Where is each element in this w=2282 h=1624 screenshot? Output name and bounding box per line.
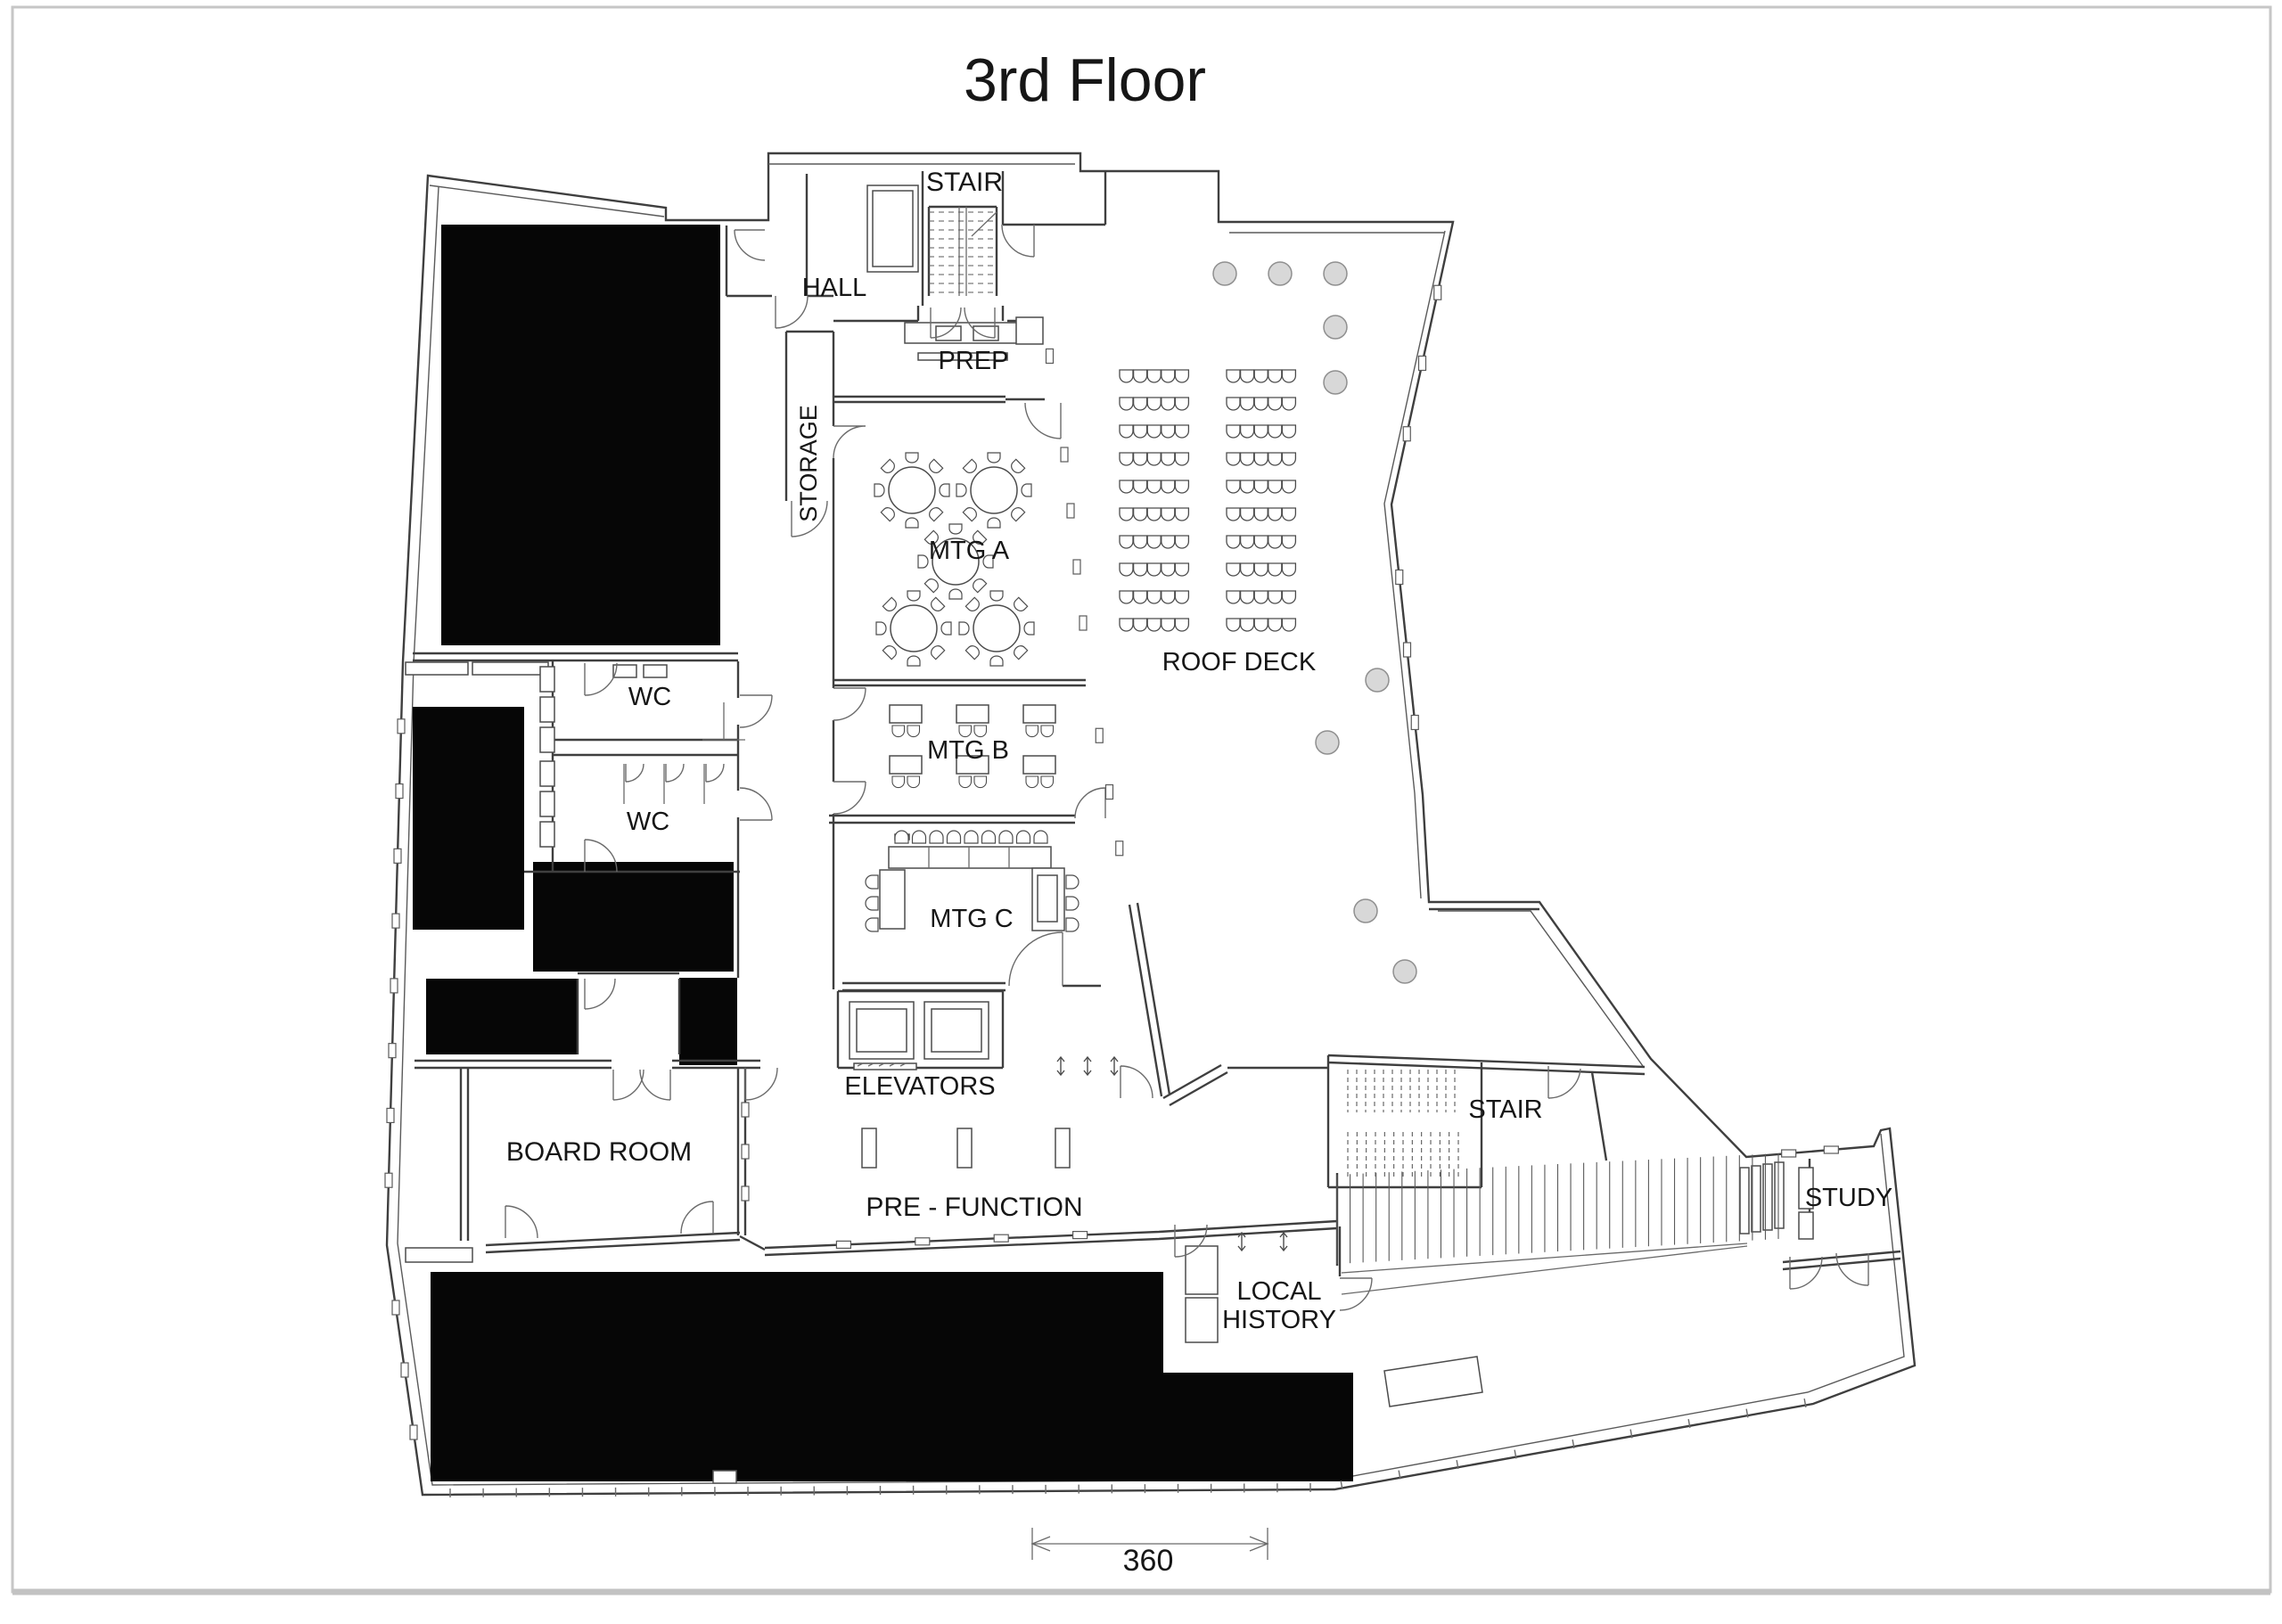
theater-chair bbox=[1254, 591, 1268, 603]
theater-chair bbox=[1254, 370, 1268, 382]
chair-icon bbox=[959, 726, 972, 737]
window-tick bbox=[1116, 841, 1123, 856]
chair-icon bbox=[999, 831, 1013, 843]
theater-chair bbox=[1147, 619, 1161, 631]
column-dot bbox=[1324, 371, 1347, 394]
conference-table-top bbox=[889, 847, 1051, 868]
locker bbox=[540, 791, 554, 816]
window-tick bbox=[1434, 285, 1441, 299]
label-stair-top: STAIR bbox=[926, 168, 1003, 197]
chair-icon bbox=[907, 656, 920, 666]
column-dot bbox=[1324, 262, 1347, 285]
chair-icon bbox=[949, 589, 962, 599]
window-tick bbox=[396, 784, 403, 799]
bookstack bbox=[1763, 1164, 1772, 1230]
theater-chair bbox=[1254, 536, 1268, 548]
prep-equipment bbox=[1016, 317, 1043, 344]
page-title: 3rd Floor bbox=[964, 46, 1206, 114]
theater-chair bbox=[1175, 480, 1188, 493]
conference-table-left bbox=[880, 870, 905, 929]
theater-chair bbox=[1120, 591, 1133, 603]
chair-icon bbox=[1026, 726, 1038, 737]
theater-chair bbox=[1282, 536, 1295, 548]
theater-chair bbox=[1175, 453, 1188, 465]
theater-chair bbox=[1282, 480, 1295, 493]
window-tick bbox=[742, 1186, 749, 1201]
chair-icon bbox=[948, 831, 961, 843]
theater-chair bbox=[1120, 480, 1133, 493]
window-tick bbox=[1824, 1146, 1838, 1153]
chair-icon bbox=[1066, 897, 1079, 910]
column-dot bbox=[1316, 731, 1339, 754]
label-wc-upper: WC bbox=[628, 683, 671, 711]
window-tick bbox=[398, 719, 405, 734]
theater-chair bbox=[1268, 619, 1282, 631]
window-tick bbox=[385, 1173, 392, 1187]
theater-chair bbox=[1241, 591, 1254, 603]
theater-chair bbox=[1268, 398, 1282, 410]
theater-chair bbox=[1162, 398, 1175, 410]
column-dot bbox=[1268, 262, 1292, 285]
theater-chair bbox=[1241, 508, 1254, 521]
theater-chair bbox=[1147, 398, 1161, 410]
window-tick bbox=[994, 1234, 1008, 1242]
label-local-history-1: LOCAL bbox=[1236, 1277, 1321, 1306]
window-tick bbox=[1079, 616, 1087, 630]
chair-icon bbox=[941, 622, 951, 635]
theater-chair bbox=[1134, 619, 1147, 631]
theater-chair bbox=[1241, 619, 1254, 631]
theater-chair bbox=[1134, 536, 1147, 548]
theater-chair bbox=[1241, 563, 1254, 576]
bookstack bbox=[1775, 1162, 1784, 1228]
round-table bbox=[971, 467, 1017, 513]
column-dot bbox=[1354, 899, 1377, 923]
theater-chair bbox=[1147, 563, 1161, 576]
elevator-sill bbox=[854, 1063, 916, 1070]
theater-chair bbox=[1241, 480, 1254, 493]
chair-icon bbox=[907, 776, 920, 788]
chair-icon bbox=[874, 484, 884, 496]
theater-chair bbox=[1268, 508, 1282, 521]
theater-chair bbox=[1254, 398, 1268, 410]
conference-table-right-inner bbox=[1038, 875, 1057, 922]
small-table bbox=[890, 756, 922, 774]
chair-icon bbox=[913, 831, 926, 843]
theater-chair bbox=[1227, 425, 1240, 438]
theater-chair bbox=[1134, 370, 1147, 382]
window-tick bbox=[742, 1103, 749, 1117]
chair-icon bbox=[974, 776, 987, 788]
column-dot bbox=[1393, 960, 1416, 983]
window-tick bbox=[1067, 504, 1074, 518]
theater-chair bbox=[1282, 508, 1295, 521]
theater-chair bbox=[1282, 563, 1295, 576]
counter bbox=[406, 662, 468, 675]
theater-chair bbox=[1120, 453, 1133, 465]
theater-chair bbox=[1268, 563, 1282, 576]
chair-icon bbox=[959, 622, 969, 635]
round-table bbox=[891, 605, 937, 652]
shaft-room bbox=[867, 185, 918, 272]
chair-icon bbox=[1034, 831, 1047, 843]
theater-chair bbox=[1175, 508, 1188, 521]
theater-chair bbox=[1147, 508, 1161, 521]
theater-chair bbox=[1268, 453, 1282, 465]
column bbox=[862, 1128, 876, 1168]
chair-icon bbox=[907, 726, 920, 737]
theater-chair bbox=[1147, 591, 1161, 603]
label-hall: HALL bbox=[802, 274, 867, 302]
label-mtg-a: MTG A bbox=[929, 537, 1010, 565]
window-tick bbox=[392, 914, 399, 928]
theater-chair bbox=[1254, 480, 1268, 493]
sink bbox=[644, 665, 667, 677]
theater-chair bbox=[1147, 453, 1161, 465]
chair-icon bbox=[892, 726, 905, 737]
chair-icon bbox=[892, 776, 905, 788]
window-tick bbox=[1061, 447, 1068, 462]
chair-icon bbox=[866, 875, 878, 889]
chair-icon bbox=[906, 518, 918, 528]
chair-icon bbox=[965, 831, 978, 843]
shaft-inner bbox=[873, 191, 913, 267]
chair-icon bbox=[990, 656, 1003, 666]
redacted-room-small-left bbox=[426, 979, 578, 1054]
chair-icon bbox=[956, 484, 966, 496]
prep-counter bbox=[905, 323, 1021, 343]
theater-chair bbox=[1120, 425, 1133, 438]
theater-chair bbox=[1227, 370, 1240, 382]
theater-chair bbox=[1268, 591, 1282, 603]
theater-chair bbox=[1254, 425, 1268, 438]
chair-icon bbox=[1024, 622, 1034, 635]
theater-chair bbox=[1227, 619, 1240, 631]
theater-chair bbox=[1175, 370, 1188, 382]
credenza bbox=[406, 1248, 472, 1262]
small-table bbox=[890, 705, 922, 723]
chair-icon bbox=[1026, 776, 1038, 788]
theater-chair bbox=[1134, 398, 1147, 410]
redacted-room-mid bbox=[533, 862, 734, 972]
door-notch bbox=[713, 1471, 736, 1483]
label-prep: PREP bbox=[939, 347, 1009, 375]
theater-chair bbox=[1162, 453, 1175, 465]
chair-icon bbox=[974, 726, 987, 737]
chair-icon bbox=[1041, 776, 1054, 788]
theater-chair bbox=[1254, 563, 1268, 576]
theater-chair bbox=[1282, 425, 1295, 438]
small-table bbox=[1023, 705, 1055, 723]
window-tick bbox=[1096, 728, 1103, 742]
window-tick bbox=[394, 849, 401, 863]
theater-chair bbox=[1254, 453, 1268, 465]
theater-chair bbox=[1227, 398, 1240, 410]
theater-chair bbox=[1227, 563, 1240, 576]
chair-icon bbox=[988, 453, 1000, 463]
theater-chair bbox=[1268, 536, 1282, 548]
chair-icon bbox=[1022, 484, 1031, 496]
theater-chair bbox=[1175, 591, 1188, 603]
chair-icon bbox=[949, 524, 962, 534]
window-tick bbox=[1047, 349, 1054, 364]
bookstack bbox=[1740, 1168, 1749, 1234]
theater-chair bbox=[1162, 508, 1175, 521]
theater-chair bbox=[1134, 425, 1147, 438]
theater-chair bbox=[1120, 563, 1133, 576]
chair-icon bbox=[1017, 831, 1030, 843]
window-tick bbox=[1396, 570, 1403, 585]
label-mtg-b: MTG B bbox=[927, 736, 1009, 765]
theater-chair bbox=[1120, 398, 1133, 410]
theater-chair bbox=[1282, 591, 1295, 603]
locker bbox=[540, 697, 554, 722]
theater-chair bbox=[1120, 619, 1133, 631]
theater-chair bbox=[1227, 480, 1240, 493]
chair-icon bbox=[907, 591, 920, 601]
chair-icon bbox=[876, 622, 886, 635]
window-tick bbox=[401, 1363, 408, 1377]
window-tick bbox=[1404, 643, 1411, 657]
label-pre-function: PRE - FUNCTION bbox=[866, 1193, 1082, 1222]
theater-chair bbox=[1268, 425, 1282, 438]
theater-chair bbox=[1254, 619, 1268, 631]
window-tick bbox=[389, 1044, 396, 1058]
theater-chair bbox=[1254, 508, 1268, 521]
label-local-history-2: HISTORY bbox=[1222, 1306, 1336, 1334]
theater-chair bbox=[1120, 370, 1133, 382]
locker bbox=[540, 727, 554, 752]
window-tick bbox=[1419, 357, 1426, 371]
theater-chair bbox=[1134, 591, 1147, 603]
column bbox=[957, 1128, 972, 1168]
round-table bbox=[889, 467, 935, 513]
theater-chair bbox=[1147, 536, 1161, 548]
label-elevators: ELEVATORS bbox=[844, 1072, 995, 1101]
small-table bbox=[956, 705, 989, 723]
theater-chair bbox=[1147, 480, 1161, 493]
theater-chair bbox=[1120, 536, 1133, 548]
chair-icon bbox=[1066, 918, 1079, 931]
chair-icon bbox=[1066, 875, 1079, 889]
theater-chair bbox=[1282, 619, 1295, 631]
round-table bbox=[973, 605, 1020, 652]
theater-chair bbox=[1162, 536, 1175, 548]
floor-plan-drawing: 360 3rd Floor STAIR HALL PREP STORAGE MT… bbox=[0, 0, 2282, 1624]
window-tick bbox=[1782, 1150, 1796, 1157]
locker bbox=[540, 761, 554, 786]
small-table bbox=[1023, 756, 1055, 774]
chair-icon bbox=[895, 831, 908, 843]
elevator-car-inner bbox=[932, 1009, 981, 1052]
label-stair-lower: STAIR bbox=[1468, 1095, 1542, 1124]
theater-chair bbox=[1162, 480, 1175, 493]
column-dot bbox=[1366, 668, 1389, 692]
theater-chair bbox=[1175, 398, 1188, 410]
locker bbox=[540, 667, 554, 692]
label-storage: STORAGE bbox=[795, 405, 822, 522]
window-tick bbox=[1073, 1232, 1088, 1239]
theater-chair bbox=[1175, 536, 1188, 548]
scale-value: 360 bbox=[1123, 1544, 1174, 1578]
theater-chair bbox=[1175, 563, 1188, 576]
chair-icon bbox=[918, 555, 928, 568]
column-dot bbox=[1213, 262, 1236, 285]
elevator-car-inner bbox=[857, 1009, 907, 1052]
chair-icon bbox=[990, 591, 1003, 601]
theater-chair bbox=[1282, 398, 1295, 410]
theater-chair bbox=[1162, 619, 1175, 631]
window-tick bbox=[742, 1144, 749, 1159]
chair-icon bbox=[906, 453, 918, 463]
chair-icon bbox=[1041, 726, 1054, 737]
floor-plan-page: 360 3rd Floor STAIR HALL PREP STORAGE MT… bbox=[0, 0, 2282, 1624]
window-tick bbox=[392, 1300, 399, 1315]
theater-chair bbox=[1147, 425, 1161, 438]
theater-chair bbox=[1162, 370, 1175, 382]
chair-icon bbox=[959, 776, 972, 788]
window-tick bbox=[836, 1241, 850, 1248]
theater-chair bbox=[1241, 398, 1254, 410]
theater-chair bbox=[1241, 453, 1254, 465]
theater-chair bbox=[1282, 370, 1295, 382]
theater-chair bbox=[1241, 425, 1254, 438]
theater-chair bbox=[1134, 563, 1147, 576]
theater-chair bbox=[1162, 425, 1175, 438]
chair-icon bbox=[940, 484, 949, 496]
theater-chair bbox=[1162, 591, 1175, 603]
theater-chair bbox=[1134, 480, 1147, 493]
chair-icon bbox=[930, 831, 943, 843]
theater-chair bbox=[1241, 536, 1254, 548]
theater-chair bbox=[1227, 536, 1240, 548]
window-tick bbox=[1403, 427, 1410, 441]
theater-chair bbox=[1268, 480, 1282, 493]
label-roof-deck: ROOF DECK bbox=[1162, 648, 1317, 677]
locker bbox=[540, 822, 554, 847]
theater-chair bbox=[1162, 563, 1175, 576]
redacted-room-small-right bbox=[679, 978, 737, 1065]
chair-icon bbox=[982, 831, 996, 843]
theater-chair bbox=[1282, 453, 1295, 465]
theater-chair bbox=[1227, 453, 1240, 465]
theater-chair bbox=[1175, 425, 1188, 438]
theater-chair bbox=[1134, 453, 1147, 465]
bookstack bbox=[1752, 1166, 1761, 1232]
theater-chair bbox=[1227, 508, 1240, 521]
cabinet bbox=[1186, 1298, 1218, 1342]
study-shelf bbox=[1799, 1212, 1813, 1239]
label-mtg-c: MTG C bbox=[930, 905, 1013, 933]
theater-chair bbox=[1134, 508, 1147, 521]
chair-icon bbox=[988, 518, 1000, 528]
label-board-room: BOARD ROOM bbox=[506, 1137, 692, 1167]
window-tick bbox=[1411, 716, 1418, 730]
theater-chair bbox=[1147, 370, 1161, 382]
window-tick bbox=[390, 979, 398, 993]
redacted-room-topleft bbox=[441, 225, 720, 645]
label-study: STUDY bbox=[1805, 1184, 1892, 1212]
redacted-room-left bbox=[413, 707, 524, 930]
label-wc-lower: WC bbox=[627, 808, 669, 836]
prep-sink-left bbox=[936, 326, 961, 340]
theater-chair bbox=[1120, 508, 1133, 521]
theater-chair bbox=[1227, 591, 1240, 603]
window-tick bbox=[387, 1108, 394, 1122]
window-tick bbox=[1073, 560, 1080, 574]
column bbox=[1055, 1128, 1070, 1168]
theater-chair bbox=[1175, 619, 1188, 631]
window-tick bbox=[915, 1238, 930, 1245]
window-tick bbox=[410, 1425, 417, 1439]
counter bbox=[472, 662, 548, 675]
chair-icon bbox=[866, 897, 878, 910]
window-tick bbox=[1106, 785, 1113, 800]
theater-chair bbox=[1241, 370, 1254, 382]
theater-chair bbox=[1268, 370, 1282, 382]
chair-icon bbox=[866, 918, 878, 931]
column-dot bbox=[1324, 316, 1347, 339]
